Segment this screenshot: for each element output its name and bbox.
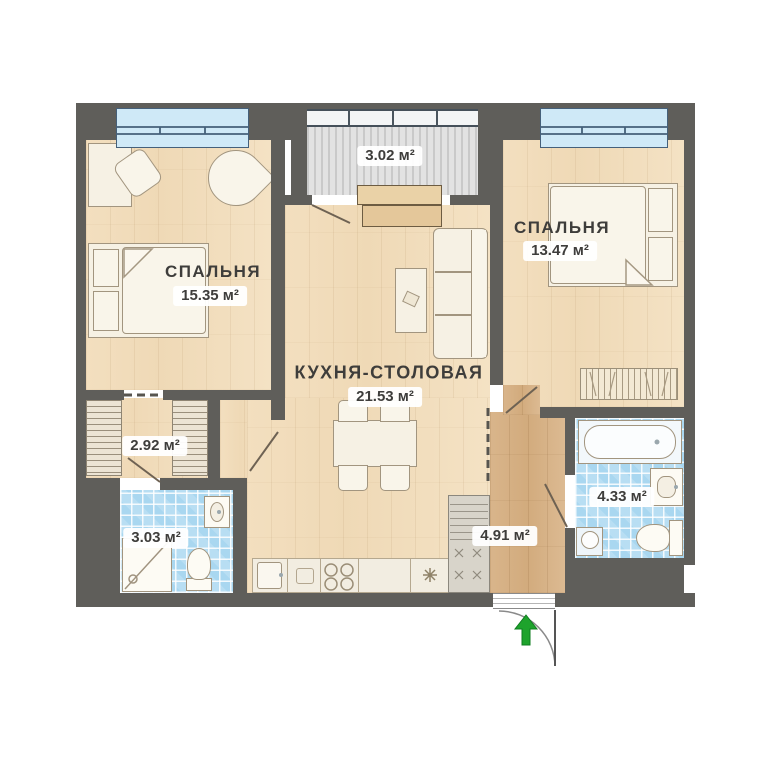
wall-wardrobe-right bbox=[208, 398, 220, 478]
entrance-hall-area-label: 4.91 м² bbox=[472, 526, 537, 546]
hallway-floor-upper bbox=[503, 385, 540, 415]
entrance-arrow-up-icon bbox=[515, 615, 537, 645]
chair-bottom-left bbox=[338, 465, 368, 491]
bedroom1-name-label: СПАЛЬНЯ bbox=[165, 262, 261, 282]
bed2-pillow-bottom bbox=[648, 237, 673, 281]
bathroom-large-area-label: 4.33 м² bbox=[589, 487, 654, 507]
counter-divider-2 bbox=[320, 558, 321, 593]
sofa-seam-1 bbox=[435, 271, 472, 273]
balcony-area-label: 3.02 м² bbox=[357, 146, 422, 166]
wall-bottom-right bbox=[555, 593, 695, 607]
wall-bath-small-right bbox=[233, 478, 247, 607]
kitchen-name-label: КУХНЯ-СТОЛОВАЯ bbox=[295, 363, 484, 384]
bedroom2-name-label: СПАЛЬНЯ bbox=[514, 218, 610, 238]
toilet-large-bowl bbox=[636, 524, 670, 552]
sofa-back bbox=[471, 230, 486, 357]
bedroom2-area-label: 13.47 м² bbox=[523, 241, 597, 261]
hallway-floor bbox=[490, 412, 565, 593]
bathtub-inner bbox=[584, 425, 676, 459]
wall-corner-bottom-right bbox=[565, 558, 684, 593]
counter-divider-1 bbox=[287, 558, 288, 593]
floor-plan: СПАЛЬНЯ 15.35 м² СПАЛЬНЯ 13.47 м² КУХНЯ-… bbox=[0, 0, 768, 768]
wall-hall-bath-b bbox=[565, 528, 575, 593]
wardrobe-left-unit bbox=[86, 400, 122, 476]
wall-right bbox=[684, 103, 695, 565]
toilet-small-bowl bbox=[187, 548, 211, 580]
bedroom1-area-label: 15.35 м² bbox=[173, 286, 247, 306]
wall-corner-bottom-left bbox=[76, 478, 120, 607]
bedroom2-window bbox=[540, 108, 668, 148]
toilet-large-tank bbox=[669, 520, 683, 556]
counter-divider-3 bbox=[358, 558, 359, 593]
washing-machine-drum bbox=[581, 531, 599, 549]
wall-under-balcony-right bbox=[450, 195, 492, 205]
sink-small-basin bbox=[210, 502, 224, 522]
bed2-pillow-top bbox=[648, 188, 673, 232]
wall-under-balcony-left bbox=[285, 195, 312, 205]
wall-kitchen-bedroom2 bbox=[490, 140, 503, 385]
sink-large-basin bbox=[657, 476, 676, 498]
counter-divider-4 bbox=[410, 558, 411, 593]
chair-bottom-right bbox=[380, 465, 410, 491]
wall-bedroom2-bottom bbox=[540, 407, 684, 418]
dining-table bbox=[333, 420, 417, 467]
bed1-pillow-bottom bbox=[93, 291, 119, 331]
balcony-glazing bbox=[307, 109, 478, 127]
entrance-threshold bbox=[493, 593, 555, 609]
wall-bath-small-top bbox=[160, 478, 235, 490]
balcony-bench-upper bbox=[357, 185, 442, 205]
sofa-seam-2 bbox=[435, 314, 472, 316]
bedroom1-window bbox=[116, 108, 249, 148]
balcony-bench-lower bbox=[362, 205, 442, 227]
wall-bottom-left bbox=[76, 593, 493, 607]
wall-hall-bath-a bbox=[565, 418, 575, 475]
bedroom2-closet-rail bbox=[580, 368, 678, 400]
wall-balcony-left bbox=[291, 103, 307, 195]
wardrobe-area-label: 2.92 м² bbox=[122, 436, 187, 456]
wall-bedroom1-kitchen bbox=[271, 140, 285, 420]
entrance-door bbox=[499, 610, 555, 666]
wall-bedroom1-bottom-a bbox=[76, 390, 124, 400]
bed1-pillow-top bbox=[93, 249, 119, 287]
kitchen-sink bbox=[257, 562, 282, 589]
cutting-board-icon bbox=[296, 568, 314, 584]
kitchen-area-label: 21.53 м² bbox=[348, 387, 422, 407]
bathroom-small-area-label: 3.03 м² bbox=[123, 528, 188, 548]
